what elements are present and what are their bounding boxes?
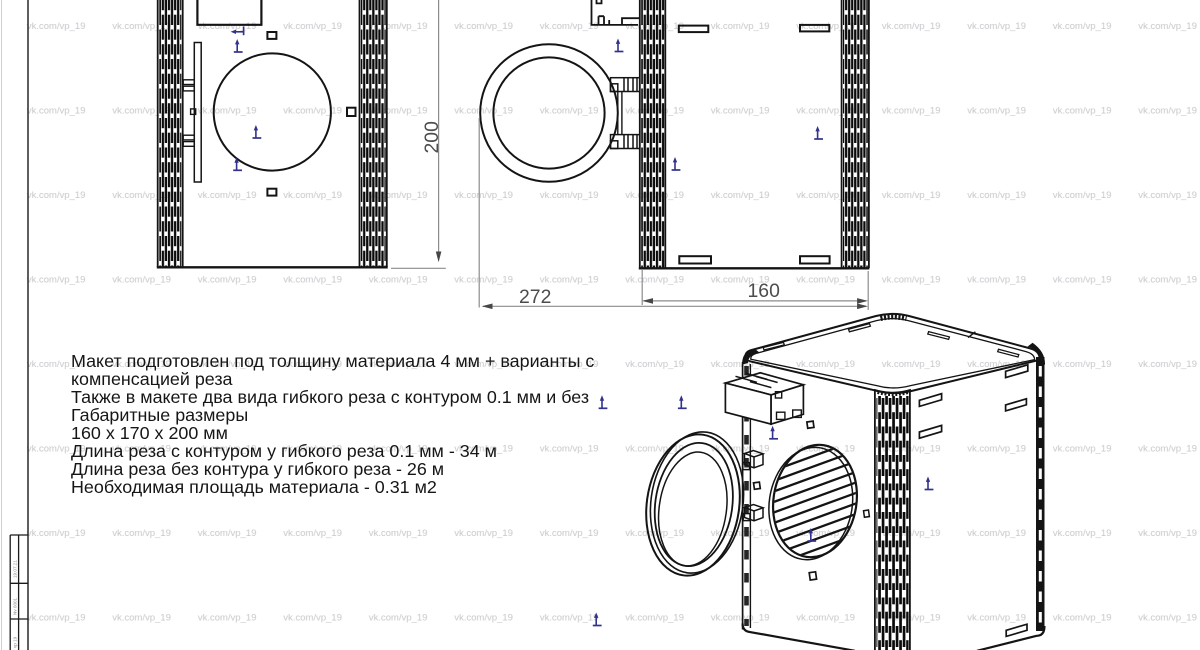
svg-text:160: 160 [748, 280, 781, 302]
svg-text:200: 200 [421, 121, 443, 154]
svg-text:272: 272 [519, 286, 551, 308]
